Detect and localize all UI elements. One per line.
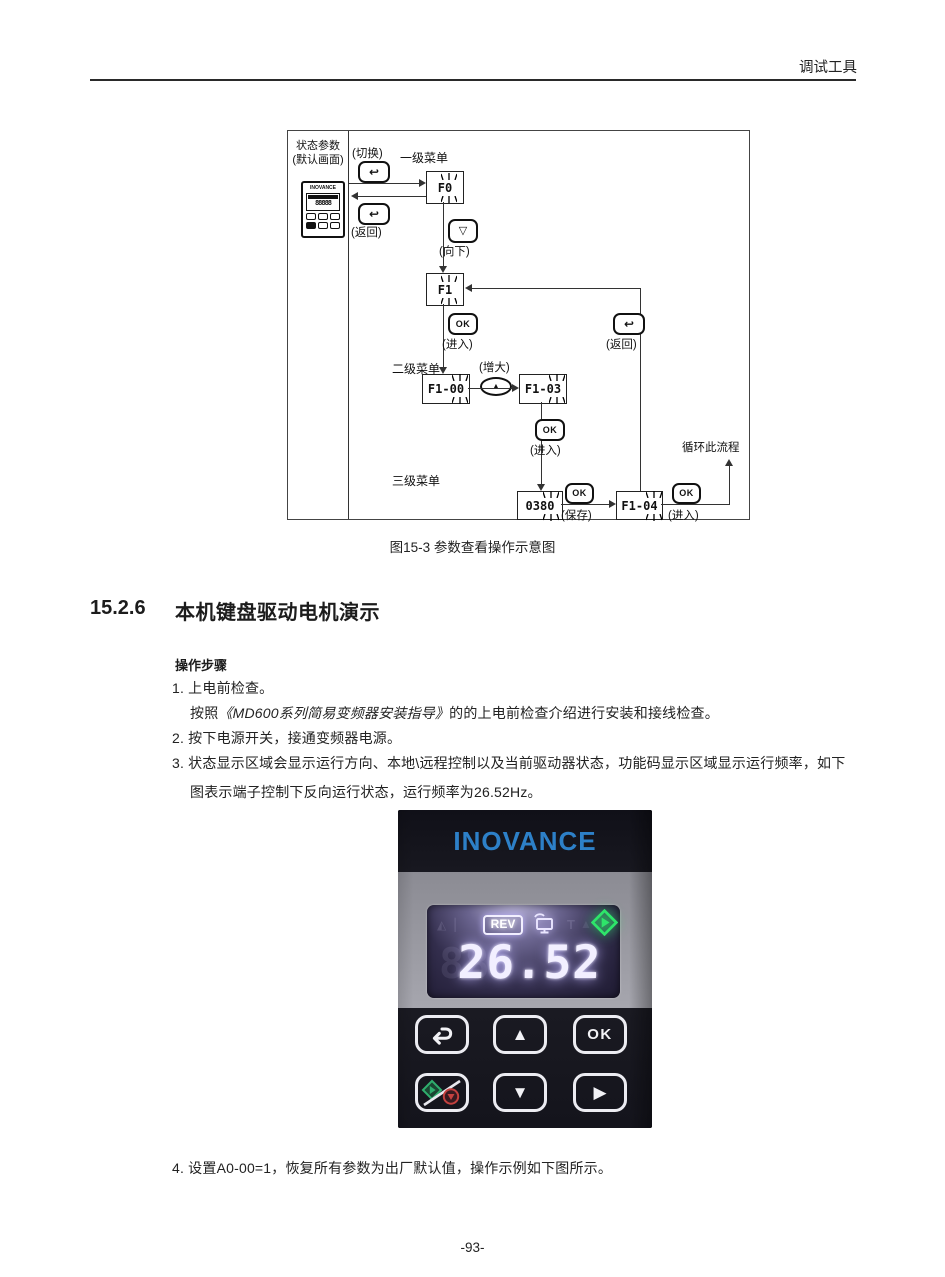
step-1: 1. 上电前检查。 [172,678,273,698]
step-1-detail-post: 的的上电前检查介绍进行安装和接线检查。 [449,705,719,721]
return-key-icon: ↩ [613,313,645,335]
mini-display-segments: 88888 [307,199,339,208]
flow-line [355,196,426,197]
figure-caption: 图15-3 参数查看操作示意图 [0,536,945,556]
ok-glyph: OK [456,320,471,329]
node-blink-digit: 0 [547,499,554,513]
run-stop-icon [421,1079,463,1107]
down-triangle-icon: ▼ [512,1084,529,1101]
mini-back-key-icon [306,213,316,220]
status-param-label-line2: (默认画面) [288,151,348,167]
unlit-status-icons: ◭▕ [437,918,455,932]
inovance-logo: INOVANCE [398,826,652,857]
step-1-detail-pre: 按照 [190,705,218,721]
mini-keypad-display: 88888 [306,193,340,211]
switch-label: (切换) [352,145,383,161]
mini-keypad-keys [306,213,340,229]
ok-key-icon: OK [535,419,565,441]
step-2: 2. 按下电源开关，接通变频器电源。 [172,728,401,748]
save-label: (保存) [561,507,592,523]
flow-line [729,463,730,505]
section-number: 15.2.6 [90,597,146,620]
step-4: 4. 设置A0-00=1，恢复所有参数为出厂默认值，操作示例如下图所示。 [172,1158,612,1178]
node-blink-digit: 3 [554,382,561,396]
step-1-detail: 按照《MD600系列简易变频器安装指导》的的上电前检查介绍进行安装和接线检查。 [190,703,719,723]
display-node-f1: F1 [426,273,464,306]
node-blink-digit: 4 [650,499,657,513]
lcd-display: ◭▕ REV T ▲ 88 2 [427,905,620,998]
manual-page: 调试工具 状态参数 (默认画面) INOVANCE 88888 (切换) [0,0,945,1277]
right-key: ▶ [573,1073,627,1112]
flow-line [348,183,419,184]
ok-key-icon: OK [565,483,594,504]
return-key-icon: ↩ [358,161,390,183]
enter-label: (进入) [442,336,473,352]
mini-up-key-icon [318,213,328,220]
photo-gray-band: ◭▕ REV T ▲ 88 2 [398,872,652,1008]
node-value: F [438,283,445,297]
ok-glyph: OK [543,426,558,435]
run-stop-key [415,1073,469,1112]
enter-label: (进入) [530,442,561,458]
node-value: F1-0 [428,382,457,396]
flow-line [468,388,512,389]
keypad-photo: INOVANCE ◭▕ REV T ▲ [398,810,652,1128]
node-blink-digit: 0 [445,181,452,195]
photo-top-band: INOVANCE [398,810,652,872]
up-triangle-icon: ▲ [512,1026,529,1043]
parameter-view-flowchart: 状态参数 (默认画面) INOVANCE 88888 (切换) ↩ [287,130,750,520]
header-rule [90,79,856,81]
header-chapter-title: 调试工具 [799,56,857,77]
down-key: ▼ [493,1073,547,1112]
node-value: 038 [526,499,548,513]
ok-key-icon: OK [672,483,701,504]
node-blink-digit: 1 [445,283,452,297]
flow-divider-line [348,131,349,519]
back-label: (返回) [351,224,382,240]
down-outline-glyph: ▽ [459,226,467,237]
node-value: F1-0 [621,499,650,513]
frequency-readout: 26.52 [444,935,615,989]
mini-right-key-icon [330,222,340,229]
node-value: F [438,181,445,195]
display-node-f1-00: F1-00 [422,374,470,404]
step-3-line2: 图表示端子控制下反向运行状态，运行频率为26.52Hz。 [190,782,542,802]
referenced-guide-title: 《MD600系列简易变频器安装指导》 [218,705,449,721]
return-arrow-glyph: ↩ [624,318,634,330]
return-arrow-glyph: ↩ [369,208,379,220]
ok-glyph: OK [572,489,587,498]
mini-keypad-brand: INOVANCE [303,185,343,191]
up-key-icon: ▲ [480,377,512,396]
flow-line [561,504,609,505]
mini-down-key-icon [318,222,328,229]
node-value: F1-0 [525,382,554,396]
up-key: ▲ [493,1015,547,1054]
loop-label: 循环此流程 [682,439,740,455]
display-node-f1-03: F1-03 [519,374,567,404]
page-number: -93- [0,1240,945,1255]
enter-label: (进入) [668,507,699,523]
flow-arrowhead [348,192,358,200]
display-node-0380: 0380 [517,491,563,520]
back-arrow-icon [429,1024,455,1046]
ok-key-label: OK [587,1026,613,1043]
display-node-f1-04: F1-04 [616,491,663,520]
down-key-icon: ▽ [448,219,478,243]
node-blink-digit: 0 [457,382,464,396]
ok-key: OK [573,1015,627,1054]
mini-runstop-key-icon [306,222,316,229]
flow-arrowhead [462,284,472,292]
menu-level3-label: 三级菜单 [392,472,440,489]
mini-ok-key-icon [330,213,340,220]
down-label: (向下) [439,243,470,259]
increase-label: (增大) [479,359,510,375]
menu-level1-label: 一级菜单 [400,149,448,166]
return-arrow-glyph: ↩ [369,166,379,178]
mini-keypad-drawing: INOVANCE 88888 [301,181,345,238]
display-node-f0: F0 [426,171,464,204]
photo-key-area: ▲ OK ▼ ▶ [398,1008,652,1128]
flow-arrowhead [725,456,733,466]
right-triangle-icon: ▶ [593,1084,606,1101]
ok-glyph: OK [679,489,694,498]
step-3-line1: 3. 状态显示区域会显示运行方向、本地\远程控制以及当前驱动器状态，功能码显示区… [172,753,845,773]
section-title: 本机键盘驱动电机演示 [175,596,380,625]
back-label: (返回) [606,336,637,352]
flow-line [469,288,640,289]
rev-status-badge: REV [483,915,523,935]
unlit-t-icon: T [567,917,575,932]
back-key [415,1015,469,1054]
ok-key-icon: OK [448,313,478,335]
flow-line [661,504,729,505]
steps-heading: 操作步骤 [175,655,227,674]
return-key-icon: ↩ [358,203,390,225]
